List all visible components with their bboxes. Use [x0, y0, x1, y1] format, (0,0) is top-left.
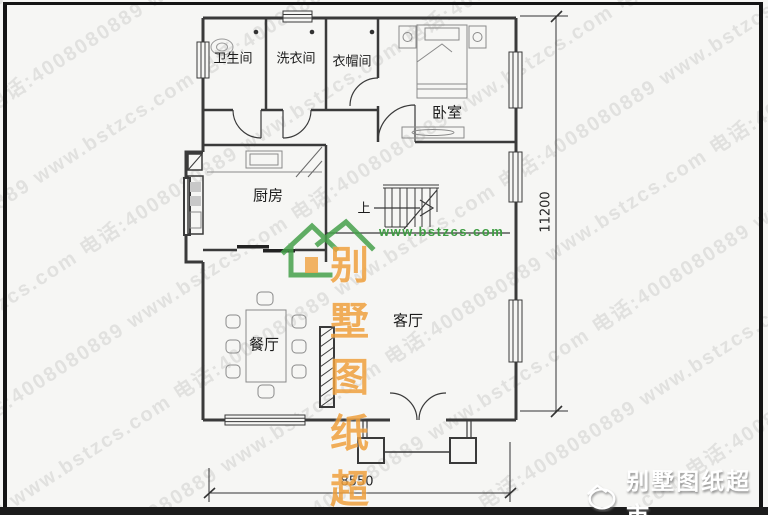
windows	[184, 11, 522, 425]
dimension-height-value: 11200	[539, 191, 554, 232]
room-label-bathroom: 卫生间	[213, 48, 252, 67]
room-label-laundry: 洗衣间	[276, 48, 315, 67]
room-label-bedroom: 卧室	[432, 102, 462, 123]
room-label-dining: 餐厅	[249, 334, 279, 355]
room-label-living: 客厅	[393, 310, 423, 331]
room-label-kitchen: 厨房	[253, 185, 283, 206]
hatched-pier	[320, 327, 334, 407]
dimension-width-value: 8550	[340, 475, 373, 490]
footer-brand-text: 别墅图纸超市	[626, 462, 768, 515]
stairs	[374, 185, 439, 229]
sliding-door	[237, 245, 295, 253]
floor-plan-drawing	[0, 0, 768, 515]
house-doodle-icon	[584, 480, 618, 512]
entry-porch	[358, 420, 476, 463]
stairs-up-label: 上	[357, 198, 370, 217]
ceiling-dots	[254, 30, 375, 35]
footer-brand-logo: 别墅图纸超市	[584, 462, 768, 515]
screenshot-root: www.bstzcs.com 电话:4008080889 www.bstzcs.…	[0, 0, 768, 515]
room-label-cloakroom: 衣帽间	[332, 51, 371, 70]
